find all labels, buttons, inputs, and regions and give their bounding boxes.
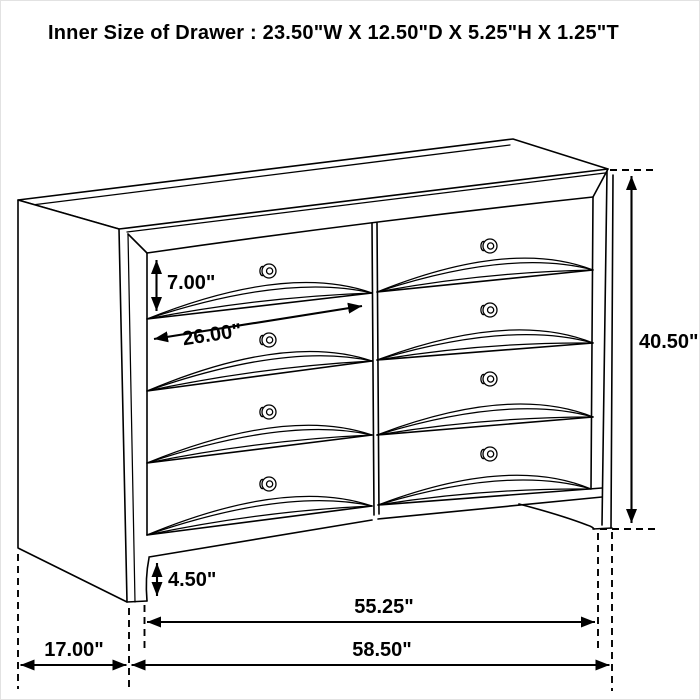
drawer-knob: [260, 264, 276, 278]
dim-overall-height-label: 40.50": [639, 331, 699, 353]
dim-base-height-label: 4.50": [168, 569, 216, 591]
drawer-knob: [260, 333, 276, 347]
dim-overall-height: 40.50": [600, 170, 699, 529]
diagram-canvas: Inner Size of Drawer : 23.50"W X 12.50"D…: [0, 0, 700, 700]
dim-inner-width: 55.25": [145, 533, 599, 650]
dim-overall-width-label: 58.50": [352, 639, 412, 661]
dresser-dimension-diagram: 7.00" 26.00" 40.50" 4.50": [1, 1, 700, 700]
drawer-knob: [481, 447, 497, 461]
dim-inner-width-label: 55.25": [354, 596, 414, 618]
dim-drawer-front-width-label: 26.00": [181, 320, 243, 351]
drawer-knob: [481, 303, 497, 317]
dim-base-height: 4.50": [157, 563, 216, 596]
drawer-knob: [481, 372, 497, 386]
dim-drawer-front-height: 7.00": [157, 260, 216, 311]
side-panel: [18, 200, 149, 602]
dim-depth-label: 17.00": [44, 639, 104, 661]
drawer-carving-left-column: [147, 283, 372, 535]
dim-drawer-front-height-label: 7.00": [167, 272, 215, 294]
drawer-knob: [481, 239, 497, 253]
drawer-knob: [260, 477, 276, 491]
drawer-knob: [260, 405, 276, 419]
dresser-drawing: [18, 139, 613, 602]
front-frame: [147, 171, 613, 557]
